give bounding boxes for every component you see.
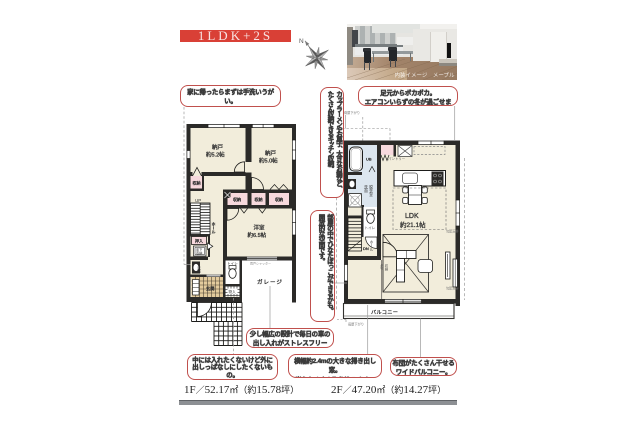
svg-text:収納: 収納	[384, 264, 388, 271]
svg-text:収納: 収納	[275, 196, 283, 202]
svg-text:収納: 収納	[196, 250, 202, 255]
svg-text:納戸: 納戸	[212, 143, 224, 151]
svg-text:4帖: 4帖	[379, 264, 383, 270]
svg-text:母屋下がり: 母屋下がり	[344, 110, 360, 115]
svg-text:約5.2帖: 約5.2帖	[206, 151, 225, 159]
svg-text:収納: 収納	[255, 196, 263, 202]
svg-text:収納: 収納	[233, 196, 241, 202]
svg-text:ホール: ホール	[369, 239, 374, 251]
svg-text:約6.5帖: 約6.5帖	[248, 231, 267, 239]
svg-text:ガレージ: ガレージ	[257, 278, 283, 286]
svg-text:UB: UB	[366, 157, 372, 162]
svg-text:バルコニー: バルコニー	[371, 310, 398, 316]
svg-text:物入: 物入	[229, 289, 237, 294]
svg-text:約5.0帖: 約5.0帖	[259, 157, 278, 165]
svg-text:押入: 押入	[195, 238, 203, 244]
svg-text:納戸: 納戸	[265, 149, 277, 157]
svg-text:勾配天井: 勾配天井	[446, 229, 459, 234]
svg-text:約21.1帖: 約21.1帖	[400, 220, 426, 229]
svg-text:玄関: 玄関	[206, 285, 214, 292]
svg-text:LDK: LDK	[405, 213, 419, 220]
svg-text:トイレ: トイレ	[365, 226, 376, 230]
svg-text:洋室: 洋室	[254, 224, 266, 232]
svg-text:母屋下がり: 母屋下がり	[348, 322, 364, 327]
svg-text:ホール: ホール	[212, 222, 217, 234]
svg-text:洗面: 洗面	[196, 265, 201, 274]
svg-text:収納: 収納	[193, 180, 201, 186]
svg-text:N: N	[299, 38, 304, 45]
svg-text:洗面: 洗面	[363, 184, 368, 193]
svg-text:UP: UP	[195, 198, 201, 203]
svg-text:脱衣室: 脱衣室	[368, 184, 373, 197]
svg-text:DN: DN	[363, 246, 369, 251]
svg-text:雨戸シャッター: 雨戸シャッター	[250, 261, 271, 266]
svg-text:トイレ: トイレ	[227, 262, 238, 266]
